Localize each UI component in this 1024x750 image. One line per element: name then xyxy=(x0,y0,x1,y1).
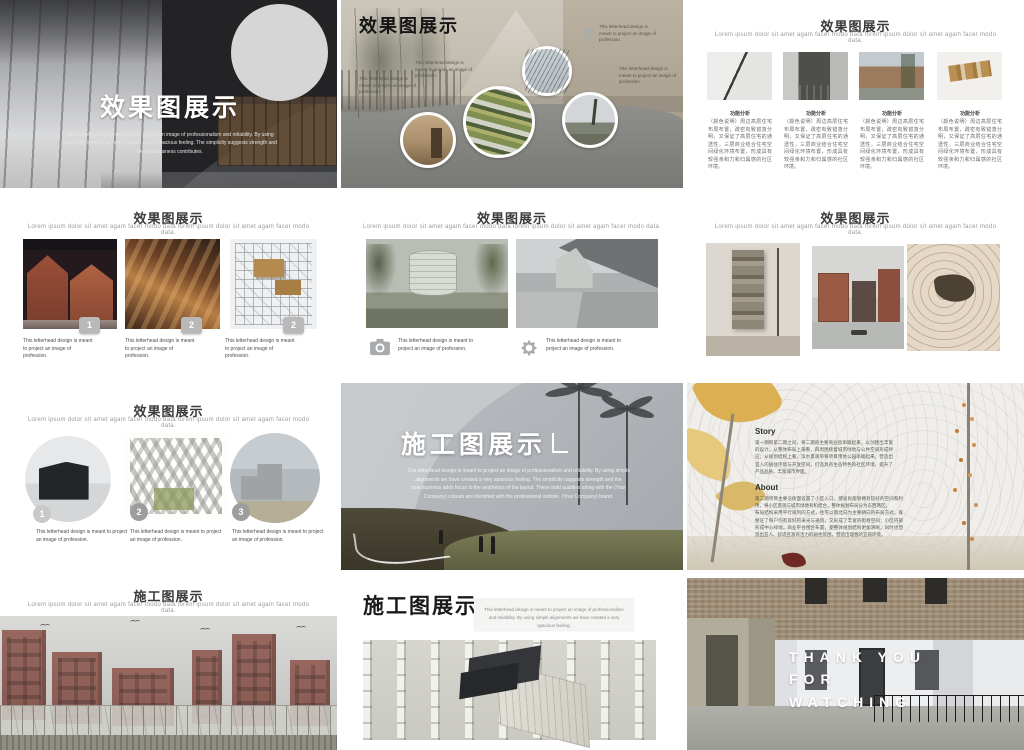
camera-icon xyxy=(369,338,391,361)
callout-note: This letterhead design is meant to proje… xyxy=(359,76,421,96)
slide-3-analysis[interactable]: 效果图展示 Lorem ipsum dolor sit amet agam fa… xyxy=(687,0,1024,188)
story-heading: Story xyxy=(755,427,775,436)
slide-title: 效果图展示 xyxy=(359,12,459,38)
story-body: 第一期和第二期之间，将二期的主要商业街串联起来，以创建出丰富的设计。从整体布局上… xyxy=(755,439,893,475)
number-badge: 2 xyxy=(181,317,202,334)
slide-body-text: This letterhead design is meant to proje… xyxy=(401,467,636,501)
slide-4-numbered-photos[interactable]: 效果图展示 Lorem ipsum dolor sit amet agam fa… xyxy=(0,196,337,375)
thumbnail-plan-sketch xyxy=(907,244,1000,351)
photo-caption: This letterhead design is meant to proje… xyxy=(125,338,195,361)
person-silhouette xyxy=(491,536,495,554)
thumbnail-courtyard xyxy=(516,239,658,328)
slide-subtitle: Lorem ipsum dolor sit amet agam facer mo… xyxy=(20,602,317,614)
thumbnail-brick-waterfront xyxy=(812,246,904,349)
about-heading: About xyxy=(755,483,778,492)
gear-icon xyxy=(519,338,539,363)
column-body: （颜色说明）周边高层住宅布局布置，疏密有致错落分明，又保证了高层住宅的通透性，三… xyxy=(938,119,1002,172)
thumbnail-night-buildings xyxy=(23,239,117,329)
slide-2-renders[interactable]: 效果图展示 This letterhead design is meant to… xyxy=(341,0,683,188)
column-heading: 功能分析 xyxy=(784,110,848,117)
slide-1-cover[interactable]: 效果图展示 This letterhead design is meant to… xyxy=(0,0,337,188)
slide-title: 效果图展示 xyxy=(62,88,278,124)
gray-circle-shape xyxy=(231,4,328,101)
column-heading: 功能分析 xyxy=(708,110,772,117)
callout-circle-sketch xyxy=(522,46,572,96)
number-badge: 2 xyxy=(130,503,148,521)
thumbnail-siteplan xyxy=(707,52,772,100)
thumbnail-tower xyxy=(783,52,848,100)
photo-birch-structure xyxy=(363,640,656,740)
corner-mark xyxy=(552,433,568,453)
thumbnail-building xyxy=(859,52,924,100)
slide-9-story-about[interactable]: Story 第一期和第二期之间，将二期的主要商业街串联起来，以创建出丰富的设计。… xyxy=(687,383,1024,570)
callout-note: This letterhead design is meant to proje… xyxy=(599,24,661,44)
callout-circle-landscape xyxy=(463,86,535,158)
thumbnail-collage-tower xyxy=(706,243,800,356)
column-heading: 功能分析 xyxy=(860,110,924,117)
slide-7-circle-photos[interactable]: 效果图展示 Lorem ipsum dolor sit amet agam fa… xyxy=(0,383,337,570)
photo-stilt-buildings xyxy=(0,616,337,750)
column-body: （颜色说明）周边高层住宅布局布置，疏密有致错落分明，又保证了高层住宅的通透性，三… xyxy=(860,119,924,172)
thank-you-message: THANK YOU FOR WATCHING xyxy=(789,646,926,713)
slide-8-construction-cover[interactable]: 施工图展示 This letterhead design is meant to… xyxy=(341,383,683,570)
thin-tree xyxy=(967,383,970,570)
slide-title: 施工图展示 xyxy=(363,590,478,620)
callout-note: This letterhead design is meant to proje… xyxy=(415,60,477,80)
number-badge: 3 xyxy=(232,503,250,521)
callout-note: This letterhead design is meant to proje… xyxy=(619,66,681,86)
photo-caption: This letterhead design is meant to proje… xyxy=(232,529,324,544)
slide-body-text: This letterhead design is meant to proje… xyxy=(62,131,278,156)
concrete-volume xyxy=(687,618,775,710)
thumbnail-scaffold xyxy=(230,239,317,329)
template-preview-grid: 效果图展示 This letterhead design is meant to… xyxy=(0,0,1024,750)
thumbnail-round-tower xyxy=(366,239,508,328)
person-silhouette xyxy=(479,536,483,552)
number-badge: 1 xyxy=(79,317,100,334)
about-body: 第二期项目主要沿街面设置了小区入口，使居民能够拥有较好的空间和利用，将小区景观与… xyxy=(755,495,903,538)
slide-5-icon-notes[interactable]: 效果图展示 Lorem ipsum dolor sit amet agam fa… xyxy=(341,196,683,375)
orange-foliage xyxy=(962,403,966,407)
icon-caption: This letterhead design is meant to proje… xyxy=(398,338,479,361)
slide-11-construction-detail[interactable]: 施工图展示 This letterhead design is meant to… xyxy=(341,578,683,750)
number-badge: 2 xyxy=(283,317,304,334)
thumbnail-model xyxy=(937,52,1002,100)
column-body: （颜色说明）周边高层住宅布局布置，疏密有致错落分明，又保证了高层住宅的通透性，三… xyxy=(708,119,772,172)
icon-caption: This letterhead design is meant to proje… xyxy=(546,338,629,363)
photo-caption: This letterhead design is meant to proje… xyxy=(130,529,222,544)
photo-caption: This letterhead design is meant to proje… xyxy=(225,338,295,361)
slide-6-sketches[interactable]: 效果图展示 Lorem ipsum dolor sit amet agam fa… xyxy=(687,196,1024,375)
callout-circle-palms xyxy=(562,92,618,148)
thumbnail-interior xyxy=(125,239,220,329)
slide-subtitle: Lorem ipsum dolor sit amet agam facer mo… xyxy=(707,32,1004,44)
number-badge: 1 xyxy=(33,505,51,523)
gear-icon xyxy=(581,26,596,46)
slide-title: 施工图展示 xyxy=(401,431,546,459)
snow-road xyxy=(101,172,337,188)
slide-subtitle: Lorem ipsum dolor sit amet agam facer mo… xyxy=(20,224,317,236)
callout-circle-interior xyxy=(400,112,456,168)
note-text: This letterhead design is meant to proje… xyxy=(484,606,624,630)
column-heading: 功能分析 xyxy=(938,110,1002,117)
note-card: This letterhead design is meant to proje… xyxy=(474,598,634,630)
slide-12-thank-you[interactable]: THANK YOU FOR WATCHING xyxy=(687,578,1024,750)
slide-10-construction-photo[interactable]: 施工图展示 Lorem ipsum dolor sit amet agam fa… xyxy=(0,578,337,750)
slide-subtitle: Lorem ipsum dolor sit amet agam facer mo… xyxy=(707,224,1004,236)
column-body: （颜色说明）周边高层住宅布局布置，疏密有致错落分明，又保证了高层住宅的通透性，三… xyxy=(784,119,848,172)
slide-subtitle: Lorem ipsum dolor sit amet agam facer mo… xyxy=(361,224,663,230)
slide-subtitle: Lorem ipsum dolor sit amet agam facer mo… xyxy=(20,417,317,429)
photo-caption: This letterhead design is meant to proje… xyxy=(36,529,128,544)
photo-caption: This letterhead design is meant to proje… xyxy=(23,338,93,361)
person-silhouette xyxy=(439,530,443,544)
